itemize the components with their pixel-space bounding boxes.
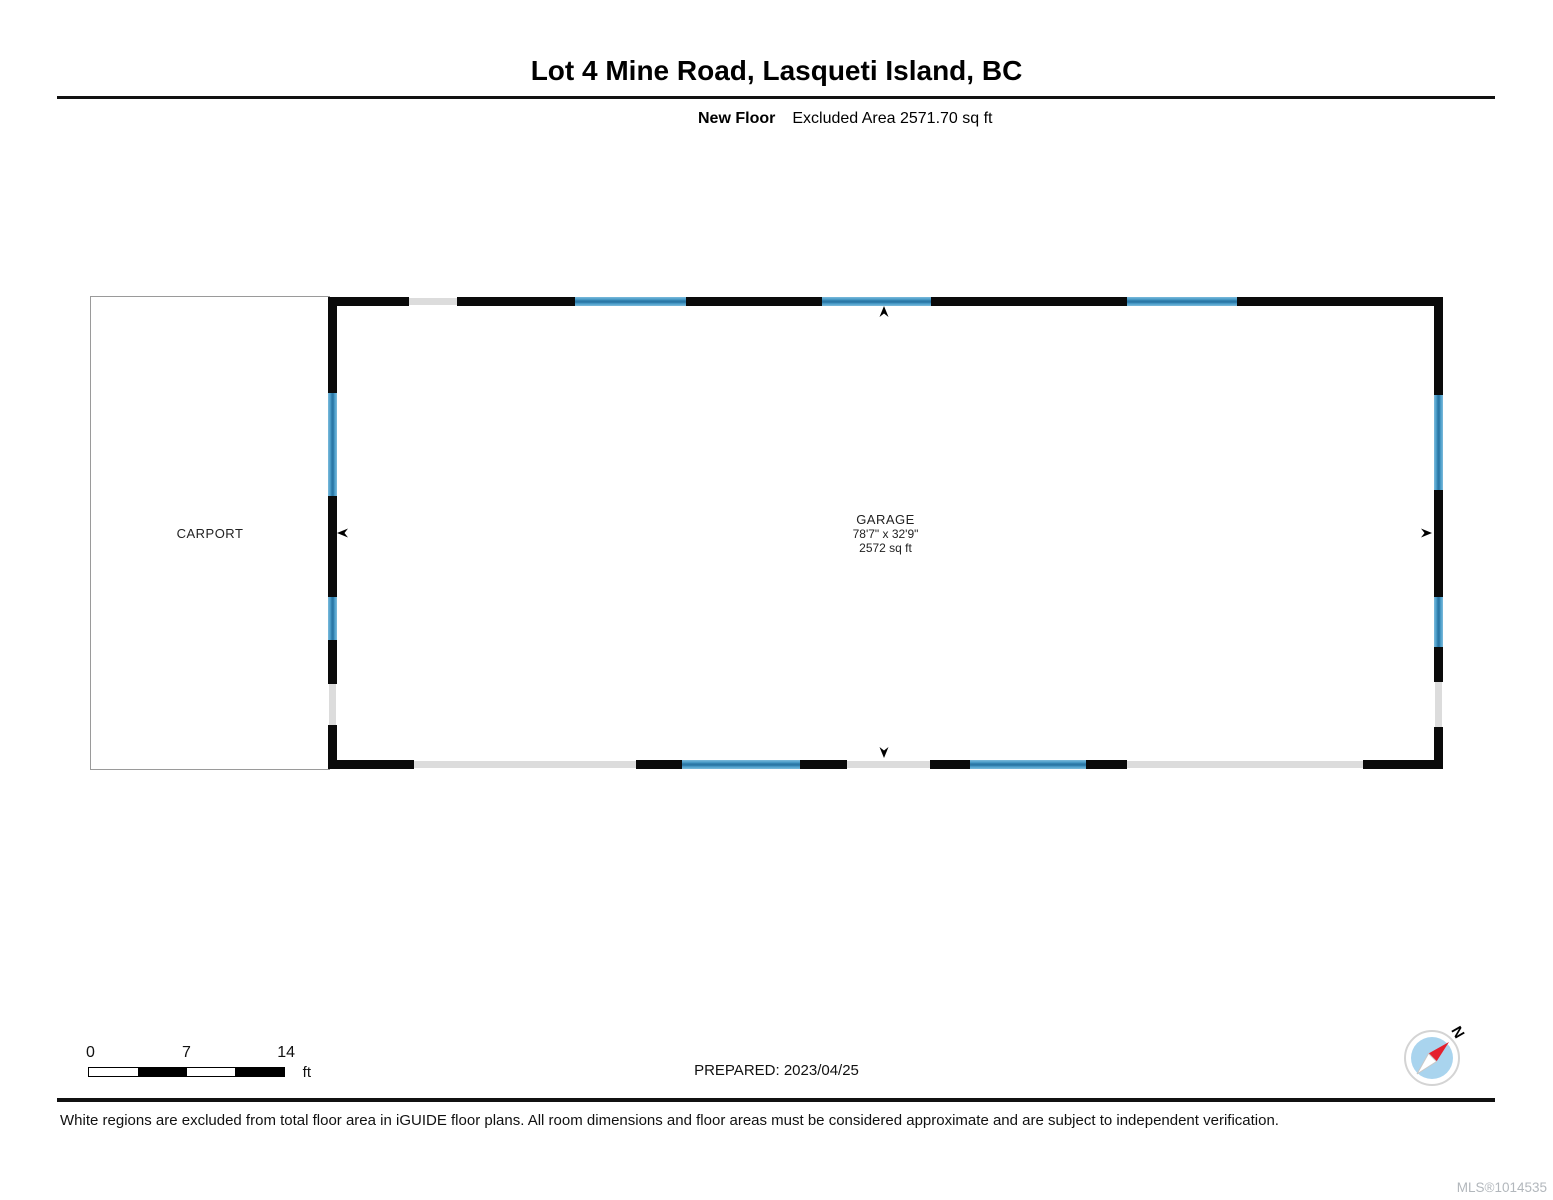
floor-subtitle: New Floor Excluded Area 2571.70 sq ft bbox=[698, 110, 992, 128]
scale-tick-7: 7 bbox=[182, 1044, 191, 1062]
wall-segment bbox=[800, 760, 847, 769]
wall-segment bbox=[1237, 297, 1443, 306]
window-segment bbox=[328, 597, 337, 640]
wall-segment bbox=[1086, 760, 1127, 769]
opening-segment bbox=[1127, 761, 1363, 768]
carport-room: CARPORT bbox=[90, 296, 330, 770]
dimension-arrow-down-icon bbox=[878, 746, 890, 758]
floorplan-page: Lot 4 Mine Road, Lasqueti Island, BC New… bbox=[0, 0, 1553, 1200]
garage-label: GARAGE 78'7" x 32'9" 2572 sq ft bbox=[328, 512, 1443, 556]
opening-segment bbox=[329, 684, 336, 725]
footer-divider bbox=[57, 1098, 1495, 1102]
wall-segment bbox=[457, 297, 575, 306]
wall-segment bbox=[1363, 760, 1443, 769]
prepared-date-label: PREPARED: 2023/04/25 bbox=[0, 1062, 1553, 1079]
window-segment bbox=[1127, 297, 1237, 306]
wall-segment bbox=[930, 760, 970, 769]
window-segment bbox=[822, 297, 931, 306]
window-segment bbox=[575, 297, 686, 306]
wall-segment bbox=[328, 297, 409, 306]
garage-wall-bottom bbox=[328, 760, 1443, 769]
garage-name-label: GARAGE bbox=[328, 512, 1443, 527]
disclaimer-text: White regions are excluded from total fl… bbox=[60, 1112, 1500, 1129]
garage-dimensions-label: 78'7" x 32'9" bbox=[328, 527, 1443, 541]
scale-tick-14: 14 bbox=[277, 1044, 295, 1062]
excluded-area-label: Excluded Area 2571.70 sq ft bbox=[792, 110, 992, 128]
wall-segment bbox=[328, 725, 337, 769]
compass-icon: N bbox=[1404, 1030, 1460, 1086]
window-segment bbox=[682, 760, 800, 769]
garage-area-label: 2572 sq ft bbox=[328, 541, 1443, 555]
opening-segment bbox=[409, 298, 457, 305]
window-segment bbox=[970, 760, 1086, 769]
dimension-arrow-left-icon bbox=[337, 527, 349, 539]
scale-tick-0: 0 bbox=[86, 1044, 95, 1062]
dimension-arrow-up-icon bbox=[878, 306, 890, 318]
wall-segment bbox=[328, 297, 337, 393]
wall-segment bbox=[1434, 297, 1443, 395]
wall-segment bbox=[1434, 727, 1443, 769]
wall-segment bbox=[686, 297, 822, 306]
wall-segment bbox=[931, 297, 1127, 306]
page-title: Lot 4 Mine Road, Lasqueti Island, BC bbox=[0, 55, 1553, 87]
wall-segment bbox=[328, 640, 337, 684]
wall-segment bbox=[328, 760, 414, 769]
mls-number: MLS®1014535 bbox=[1457, 1180, 1547, 1195]
wall-segment bbox=[1434, 647, 1443, 682]
wall-segment bbox=[636, 760, 682, 769]
compass-north-label: N bbox=[1447, 1024, 1467, 1042]
opening-segment bbox=[1435, 682, 1442, 727]
window-segment bbox=[328, 393, 337, 496]
window-segment bbox=[1434, 597, 1443, 647]
floor-name: New Floor bbox=[698, 110, 775, 128]
carport-label: CARPORT bbox=[177, 526, 244, 541]
window-segment bbox=[1434, 395, 1443, 490]
dimension-arrow-right-icon bbox=[1420, 527, 1432, 539]
header-divider bbox=[57, 96, 1495, 99]
opening-segment bbox=[414, 761, 636, 768]
opening-segment bbox=[847, 761, 930, 768]
garage-wall-top bbox=[328, 297, 1443, 306]
